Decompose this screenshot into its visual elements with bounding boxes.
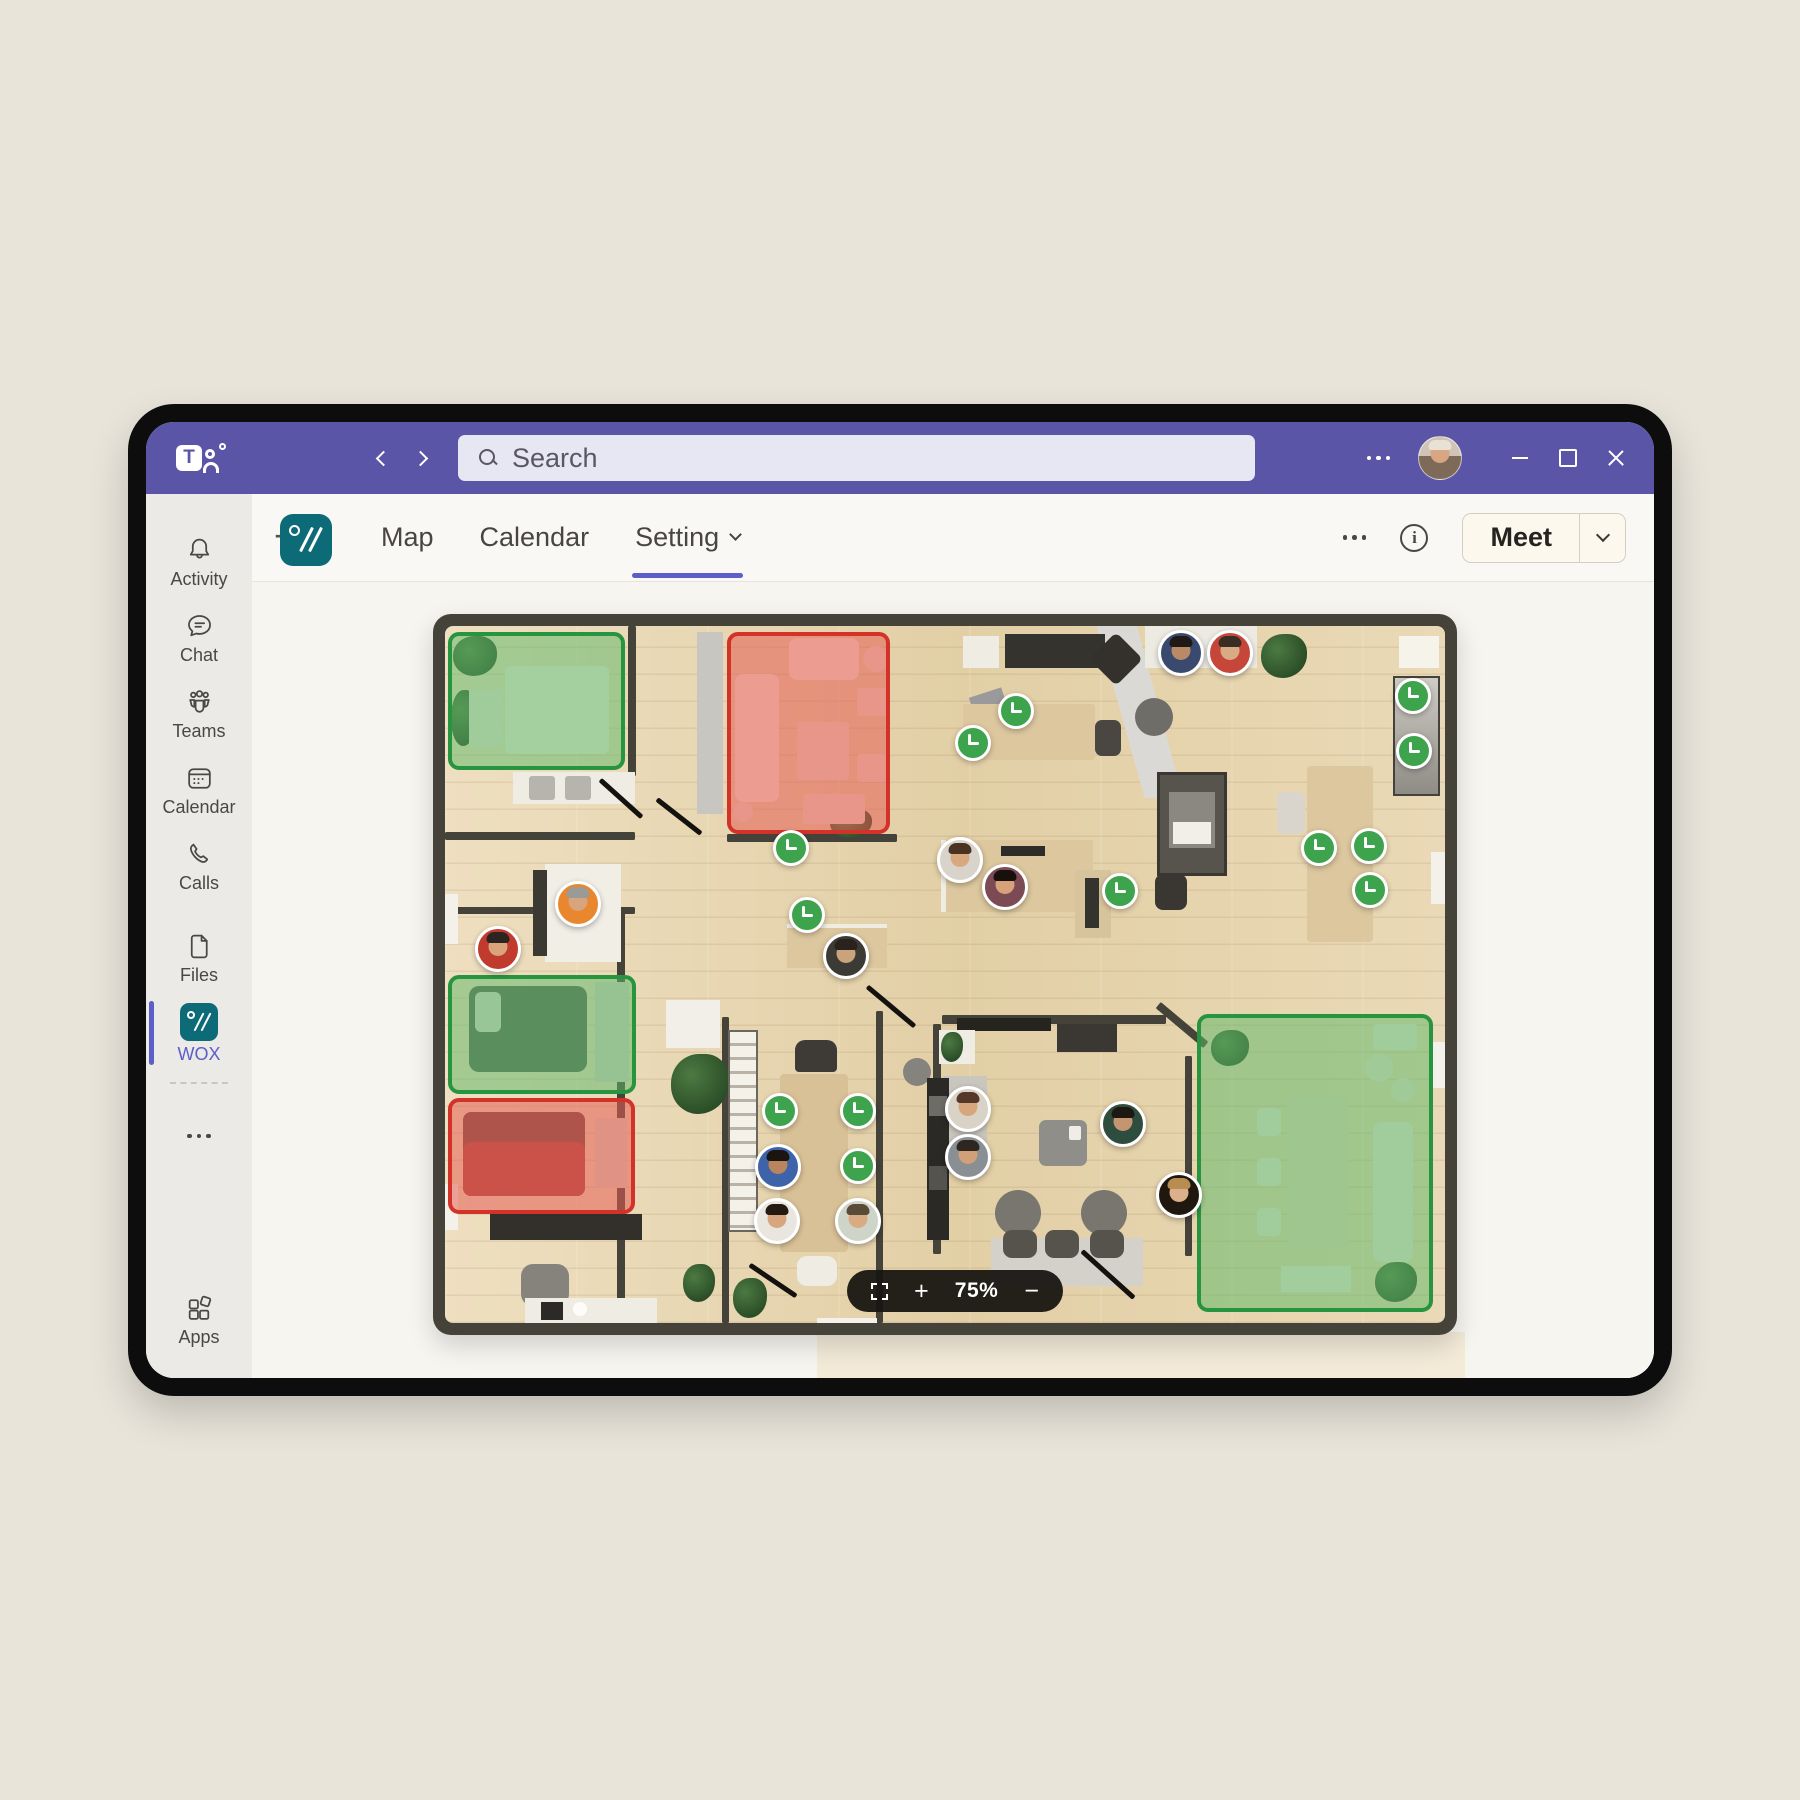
furniture bbox=[1057, 1024, 1117, 1052]
office-floor-plan-map[interactable]: + 75% − bbox=[433, 614, 1457, 1335]
fullscreen-icon[interactable] bbox=[871, 1283, 888, 1300]
search-placeholder: Search bbox=[512, 443, 598, 474]
search-icon bbox=[478, 448, 498, 468]
title-bar: T Search bbox=[146, 422, 1654, 494]
desk-availability-clock-badge[interactable] bbox=[773, 830, 809, 866]
chevron-down-icon bbox=[729, 528, 742, 541]
back-icon[interactable] bbox=[376, 450, 392, 466]
furniture bbox=[1095, 720, 1121, 756]
person-avatar-marker[interactable] bbox=[945, 1086, 991, 1132]
sidebar-item-label: Teams bbox=[172, 721, 225, 742]
furniture bbox=[963, 636, 999, 668]
calendar-icon bbox=[184, 763, 215, 794]
sidebar-item-label: Chat bbox=[180, 645, 218, 666]
sidebar-item-label: Files bbox=[180, 965, 218, 986]
furniture bbox=[929, 1166, 947, 1190]
furniture bbox=[1003, 1230, 1037, 1258]
furniture bbox=[445, 894, 458, 944]
person-avatar-marker[interactable] bbox=[835, 1198, 881, 1244]
furniture bbox=[728, 1030, 758, 1232]
file-icon bbox=[184, 931, 215, 962]
furniture bbox=[1085, 878, 1099, 928]
sidebar-divider bbox=[170, 1082, 228, 1084]
person-avatar-marker[interactable] bbox=[823, 933, 869, 979]
desk-availability-clock-badge[interactable] bbox=[1102, 873, 1138, 909]
furniture bbox=[1005, 634, 1105, 668]
desk-availability-clock-badge[interactable] bbox=[1396, 733, 1432, 769]
furniture bbox=[817, 1318, 877, 1323]
device-frame: T Search bbox=[128, 404, 1672, 1396]
sidebar-item-calls[interactable]: Calls bbox=[146, 828, 252, 904]
sidebar-item-calendar[interactable]: Calendar bbox=[146, 752, 252, 828]
teams-logo-letter: T bbox=[176, 445, 202, 471]
active-indicator bbox=[149, 1001, 154, 1065]
bookable-room-zone[interactable] bbox=[448, 1098, 635, 1214]
desk-availability-clock-badge[interactable] bbox=[789, 897, 825, 933]
forward-icon[interactable] bbox=[413, 450, 429, 466]
desk-availability-clock-badge[interactable] bbox=[1352, 872, 1388, 908]
tab-label: Setting bbox=[635, 522, 719, 553]
furniture bbox=[1431, 1042, 1445, 1088]
person-avatar-marker[interactable] bbox=[555, 881, 601, 927]
desk-availability-clock-badge[interactable] bbox=[955, 725, 991, 761]
person-avatar-marker[interactable] bbox=[982, 864, 1028, 910]
meet-split-button: Meet bbox=[1462, 513, 1626, 563]
furniture bbox=[866, 985, 917, 1029]
teams-logo-icon: T bbox=[176, 440, 228, 476]
bookable-room-zone[interactable] bbox=[448, 632, 625, 770]
furniture bbox=[490, 1214, 642, 1240]
furniture bbox=[1185, 1056, 1192, 1256]
people-icon bbox=[184, 687, 215, 718]
map-zoom-toolbar: + 75% − bbox=[847, 1270, 1063, 1312]
furniture bbox=[1001, 846, 1045, 856]
map-content-area: + 75% − bbox=[252, 582, 1654, 1378]
sidebar-item-chat[interactable]: Chat bbox=[146, 600, 252, 676]
close-button[interactable] bbox=[1592, 422, 1640, 494]
sidebar-item-teams[interactable]: Teams bbox=[146, 676, 252, 752]
search-input[interactable]: Search bbox=[458, 435, 1255, 481]
sidebar-item-label: Calls bbox=[179, 873, 219, 894]
furniture bbox=[1431, 852, 1445, 904]
person-avatar-marker[interactable] bbox=[1207, 630, 1253, 676]
app-rail-sidebar: Activity Chat Teams Calendar Calls bbox=[146, 494, 252, 1378]
floor-plan-floor: + 75% − bbox=[445, 626, 1445, 1323]
tab-more-icon[interactable] bbox=[1343, 535, 1367, 540]
furniture bbox=[1173, 822, 1211, 844]
titlebar-more-icon[interactable] bbox=[1367, 456, 1391, 461]
furniture bbox=[1155, 874, 1187, 910]
desk-availability-clock-badge[interactable] bbox=[998, 693, 1034, 729]
zoom-in-button[interactable]: + bbox=[914, 1279, 929, 1304]
furniture bbox=[1399, 636, 1439, 668]
zoom-out-button[interactable]: − bbox=[1024, 1279, 1039, 1304]
furniture bbox=[655, 797, 702, 835]
furniture bbox=[1090, 1230, 1124, 1258]
furniture bbox=[671, 1054, 729, 1114]
sheet-decoration bbox=[817, 1332, 1465, 1378]
desk-availability-clock-badge[interactable] bbox=[840, 1148, 876, 1184]
person-avatar-marker[interactable] bbox=[755, 1144, 801, 1190]
meet-dropdown-button[interactable] bbox=[1579, 514, 1625, 562]
sidebar-item-activity[interactable]: Activity bbox=[146, 524, 252, 600]
zoom-level: 75% bbox=[955, 1279, 999, 1303]
furniture bbox=[1261, 634, 1307, 678]
chevron-down-icon bbox=[1595, 528, 1609, 542]
sidebar-more-icon[interactable] bbox=[187, 1116, 211, 1156]
bookable-room-zone[interactable] bbox=[1197, 1014, 1433, 1312]
tab[interactable]: Calendar bbox=[457, 494, 613, 581]
channel-tab-bar: Map Calendar Setting + i bbox=[252, 494, 1654, 582]
sidebar-item-apps[interactable]: Apps bbox=[146, 1282, 252, 1358]
phone-icon bbox=[184, 839, 215, 870]
user-avatar[interactable] bbox=[1418, 436, 1462, 480]
sidebar-item-label: WOX bbox=[178, 1044, 221, 1065]
chat-bubble-icon bbox=[184, 611, 215, 642]
furniture bbox=[797, 1256, 837, 1286]
bookable-room-zone[interactable] bbox=[448, 975, 636, 1094]
person-avatar-marker[interactable] bbox=[1100, 1101, 1146, 1147]
furniture bbox=[1135, 698, 1173, 736]
furniture bbox=[795, 1040, 837, 1072]
meet-button[interactable]: Meet bbox=[1463, 514, 1579, 562]
sidebar-item-label: Calendar bbox=[162, 797, 235, 818]
desk-availability-clock-badge[interactable] bbox=[762, 1093, 798, 1129]
furniture bbox=[529, 776, 555, 800]
person-avatar-marker[interactable] bbox=[1158, 630, 1204, 676]
minimize-button[interactable] bbox=[1496, 422, 1544, 494]
tab-list: Map Calendar Setting bbox=[358, 494, 763, 581]
furniture bbox=[1277, 792, 1305, 834]
furniture bbox=[727, 834, 897, 842]
furniture bbox=[533, 870, 547, 956]
furniture bbox=[541, 1302, 563, 1320]
teams-window: T Search bbox=[146, 422, 1654, 1378]
furniture bbox=[1069, 1126, 1081, 1140]
furniture bbox=[573, 1302, 587, 1316]
tab-label: Calendar bbox=[480, 522, 590, 553]
person-avatar-marker[interactable] bbox=[937, 837, 983, 883]
info-icon[interactable]: i bbox=[1400, 524, 1428, 552]
furniture bbox=[445, 832, 635, 840]
person-avatar-marker[interactable] bbox=[1156, 1172, 1202, 1218]
tab-label: Map bbox=[381, 522, 434, 553]
maximize-button[interactable] bbox=[1544, 422, 1592, 494]
sidebar-item-files[interactable]: Files bbox=[146, 920, 252, 996]
furniture bbox=[1045, 1230, 1079, 1258]
desk-availability-clock-badge[interactable] bbox=[1301, 830, 1337, 866]
sidebar-item-wox[interactable]: WOX bbox=[146, 996, 252, 1072]
desk-availability-clock-badge[interactable] bbox=[840, 1093, 876, 1129]
person-avatar-marker[interactable] bbox=[475, 926, 521, 972]
desk-availability-clock-badge[interactable] bbox=[1351, 828, 1387, 864]
bookable-room-zone[interactable] bbox=[727, 632, 890, 834]
furniture bbox=[565, 776, 591, 800]
sidebar-item-label: Apps bbox=[178, 1327, 219, 1348]
tab[interactable]: Setting bbox=[612, 494, 763, 581]
bell-icon bbox=[184, 535, 215, 566]
furniture bbox=[697, 632, 723, 814]
furniture bbox=[628, 626, 636, 776]
furniture bbox=[683, 1264, 715, 1302]
apps-icon bbox=[184, 1293, 215, 1324]
sidebar-item-label: Activity bbox=[170, 569, 227, 590]
furniture bbox=[733, 1278, 767, 1318]
desk-availability-clock-badge[interactable] bbox=[1395, 678, 1431, 714]
furniture bbox=[666, 1000, 720, 1048]
wox-app-icon bbox=[180, 1003, 218, 1041]
wox-tab-app-icon[interactable] bbox=[280, 514, 332, 566]
person-avatar-marker[interactable] bbox=[945, 1134, 991, 1180]
person-avatar-marker[interactable] bbox=[754, 1198, 800, 1244]
tab[interactable]: Map bbox=[358, 494, 457, 581]
